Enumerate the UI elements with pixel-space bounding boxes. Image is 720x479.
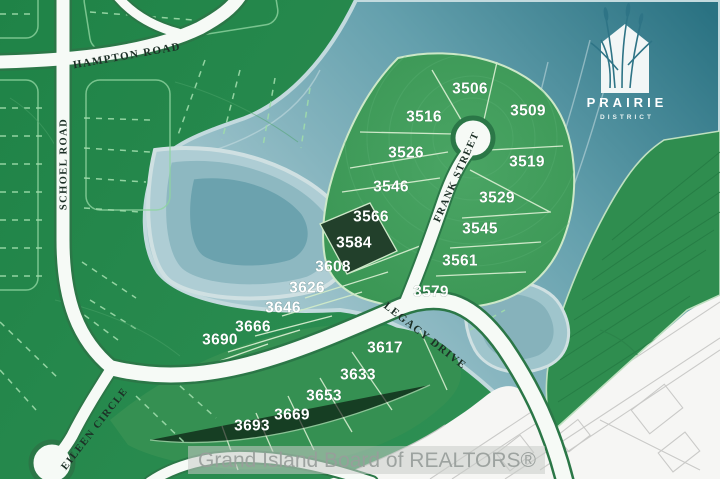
lot-label[interactable]: 3506 (452, 81, 488, 98)
plat-map: HAMPTON ROAD SCHOEL ROAD FRANK STREET LE… (0, 0, 720, 479)
lot-label[interactable]: 3693 (234, 418, 270, 435)
lot-label[interactable]: 3519 (509, 154, 545, 171)
watermark: Grand Island Board of REALTORS® (188, 446, 545, 474)
logo-title: PRAIRIE (587, 95, 668, 110)
lot-label[interactable]: 3608 (315, 259, 351, 276)
lot-label[interactable]: 3617 (367, 340, 403, 357)
lot-label[interactable]: 3653 (306, 388, 342, 405)
lot-label[interactable]: 3566 (353, 209, 389, 226)
lot-label[interactable]: 3690 (202, 332, 238, 349)
lot-label[interactable]: 3546 (373, 179, 409, 196)
lot-label[interactable]: 3561 (442, 253, 478, 270)
plat-map-svg: HAMPTON ROAD SCHOEL ROAD FRANK STREET LE… (0, 0, 720, 479)
road-label-schoel: SCHOEL ROAD (59, 118, 70, 210)
lot-label[interactable]: 3509 (510, 103, 546, 120)
lot-label[interactable]: 3626 (289, 280, 325, 297)
lot-label[interactable]: 3666 (235, 319, 271, 336)
lot-label[interactable]: 3526 (388, 145, 424, 162)
lot-label[interactable]: 3633 (340, 367, 376, 384)
lot-label[interactable]: 3669 (274, 407, 310, 424)
lot-label[interactable]: 3646 (265, 300, 301, 317)
lot-label[interactable]: 3516 (406, 109, 442, 126)
watermark-text: Grand Island Board of REALTORS® (198, 449, 537, 472)
lot-label-highlighted[interactable]: 3584 (336, 235, 372, 252)
lot-label[interactable]: 3545 (462, 221, 498, 238)
lot-label[interactable]: 3529 (479, 190, 515, 207)
logo-subtitle: DISTRICT (600, 114, 654, 121)
lot-label[interactable]: 3579 (413, 284, 449, 301)
